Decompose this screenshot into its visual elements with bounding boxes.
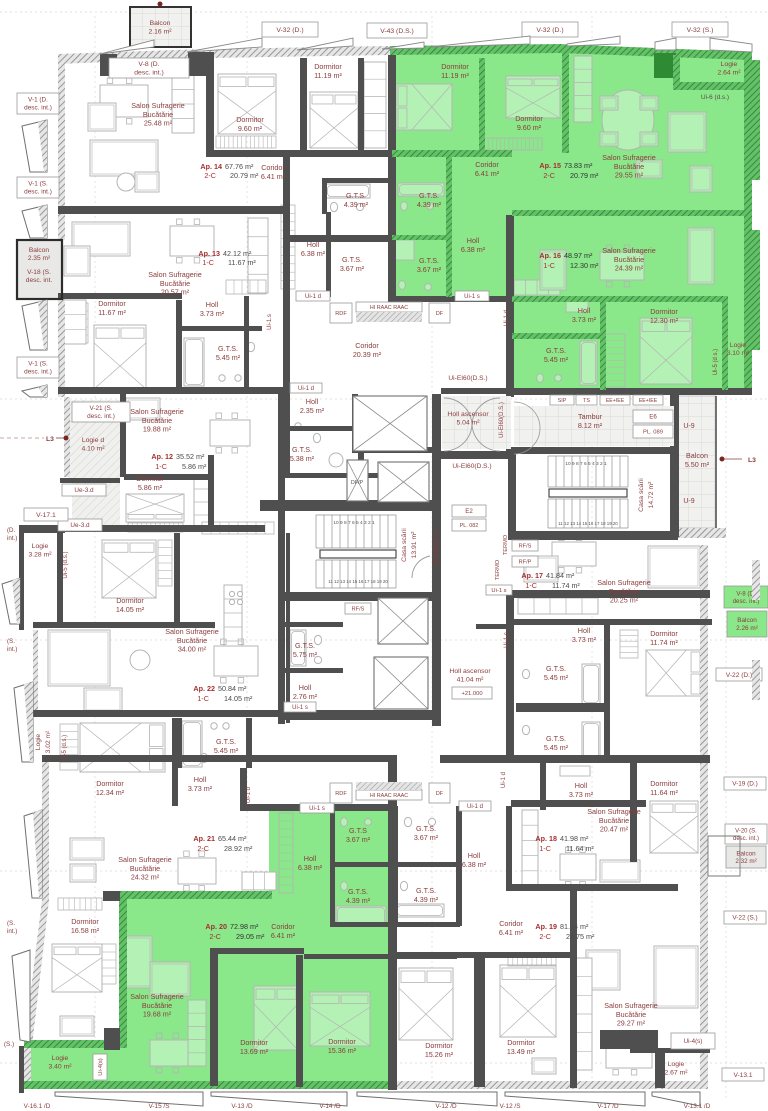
svg-text:Dormitor: Dormitor [328,1037,356,1046]
svg-text:20.25 m²: 20.25 m² [610,596,639,605]
svg-text:G.T.S: G.T.S [349,826,367,835]
svg-text:6.41 m²: 6.41 m² [475,169,500,178]
svg-text:11.19 m²: 11.19 m² [441,71,469,80]
svg-text:5.75 m²: 5.75 m² [293,650,318,659]
svg-text:Ap. 16: Ap. 16 [539,251,561,260]
svg-text:desc. int.): desc. int.) [24,369,52,376]
svg-text:14.05 m²: 14.05 m² [116,605,145,614]
svg-text:Ui-1 s: Ui-1 s [292,705,308,711]
svg-text:Holl ascensor: Holl ascensor [447,411,489,418]
svg-text:20.39 m²: 20.39 m² [353,350,382,359]
svg-text:RF/P: RF/P [519,559,532,565]
svg-text:4.39 m²: 4.39 m² [344,200,369,209]
svg-text:Coridor: Coridor [271,922,295,931]
svg-text:Holl: Holl [578,626,591,635]
svg-text:2.76 m²: 2.76 m² [293,692,318,701]
svg-text:2-C: 2-C [539,932,551,941]
svg-text:2.67 m²: 2.67 m² [664,1069,688,1076]
svg-text:Ap. 12: Ap. 12 [151,452,173,461]
svg-text:1-C: 1-C [197,694,209,703]
svg-text:3.67 m²: 3.67 m² [417,265,442,274]
svg-text:Salon Sufragerie: Salon Sufragerie [118,855,172,864]
svg-text:Bucătărie: Bucătărie [160,279,190,288]
svg-text:Ui-EI60(D S.): Ui-EI60(D S.) [433,530,440,567]
svg-text:12.34 m²: 12.34 m² [96,788,125,797]
svg-text:TERMO: TERMO [495,559,501,580]
svg-text:Holl: Holl [575,781,588,790]
svg-text:3.67 m²: 3.67 m² [346,835,371,844]
svg-text:25.48 m²: 25.48 m² [144,119,173,128]
svg-text:48.97 m²: 48.97 m² [564,251,593,260]
svg-text:Holl: Holl [206,300,219,309]
svg-text:24.32 m²: 24.32 m² [131,873,160,882]
svg-text:Dormitor: Dormitor [650,629,678,638]
svg-text:41.04 m²: 41.04 m² [457,676,485,683]
svg-text:3.28 m²: 3.28 m² [28,551,52,558]
svg-text:EE+IEE: EE+IEE [639,398,658,404]
svg-text:41.98 m²: 41.98 m² [560,834,589,843]
svg-text:Ap. 22: Ap. 22 [193,684,215,693]
svg-text:1-C: 1-C [539,844,551,853]
svg-text:Ui-EI60(D.S.): Ui-EI60(D.S.) [452,463,491,470]
svg-text:HI RAAC RAAC: HI RAAC RAAC [370,793,408,799]
svg-text:13.69 m²: 13.69 m² [240,1047,269,1056]
svg-text:5.45 m²: 5.45 m² [216,353,241,362]
svg-text:RF/S: RF/S [519,543,532,549]
svg-text:U-9: U-9 [683,498,694,505]
svg-text:TERMO: TERMO [503,534,509,555]
svg-text:desc. int.): desc. int.) [24,105,52,112]
svg-text:PL. 089: PL. 089 [643,430,663,436]
svg-text:V-20 (S.: V-20 (S. [735,828,757,834]
svg-text:RDF: RDF [335,311,347,317]
svg-text:15.26 m²: 15.26 m² [425,1050,454,1059]
svg-text:2.35 m²: 2.35 m² [300,406,325,415]
svg-text:Casa scării: Casa scării [401,528,408,562]
svg-text:2.32 m²: 2.32 m² [735,858,756,865]
svg-text:L3: L3 [748,457,756,464]
svg-text:11.64 m²: 11.64 m² [566,844,594,853]
svg-text:G.T.S.: G.T.S. [546,664,566,673]
svg-text:12.30 m²: 12.30 m² [650,316,679,325]
svg-text:Bucătărie: Bucătărie [616,1010,646,1019]
svg-text:PL. 082: PL. 082 [460,523,479,529]
svg-text:67.76 m²: 67.76 m² [225,162,254,171]
svg-text:Ui-1 d: Ui-1 d [246,787,252,803]
svg-text:15.36 m²: 15.36 m² [328,1046,357,1055]
svg-text:11.67 m²: 11.67 m² [98,308,126,317]
svg-text:Ap. 15: Ap. 15 [539,161,561,170]
svg-text:Holl: Holl [194,775,207,784]
svg-text:int.): int.) [7,535,17,542]
svg-text:3.67 m²: 3.67 m² [414,833,439,842]
svg-text:11.74 m²: 11.74 m² [650,638,678,647]
svg-text:4.10 m²: 4.10 m² [81,445,105,452]
svg-text:DF: DF [436,791,444,797]
svg-text:4.39 m²: 4.39 m² [414,895,439,904]
svg-text:Dormitor: Dormitor [507,1038,535,1047]
svg-text:Bucătărie: Bucătărie [177,636,207,645]
svg-text:(S.): (S.) [4,1041,14,1048]
svg-text:EE+IEE: EE+IEE [606,398,625,404]
svg-text:4.39 m²: 4.39 m² [417,200,442,209]
svg-text:V-15 /S: V-15 /S [149,1103,170,1110]
svg-text:desc. int.): desc. int.) [87,413,115,420]
svg-text:V-1 (S.: V-1 (S. [28,181,48,188]
svg-text:6.41 m²: 6.41 m² [271,931,296,940]
svg-text:G.T.S.: G.T.S. [218,344,238,353]
svg-text:G.T.S.: G.T.S. [546,734,566,743]
svg-text:20.79 m²: 20.79 m² [230,171,259,180]
svg-text:Ui-1 s: Ui-1 s [491,588,506,594]
svg-text:int.): int.) [7,928,17,935]
svg-text:Ui-6 (d.s.): Ui-6 (d.s.) [701,94,729,101]
svg-text:19.88 m²: 19.88 m² [143,425,172,434]
svg-text:Bucătărie: Bucătărie [142,1001,172,1010]
svg-text:Bucătărie: Bucătărie [614,255,644,264]
svg-text:Salon Sufragerie: Salon Sufragerie [130,992,184,1001]
svg-text:V-32 (D.): V-32 (D.) [536,27,563,34]
svg-text:Dormitor: Dormitor [515,114,543,123]
svg-text:Ap. 13: Ap. 13 [198,249,220,258]
svg-text:6.38 m²: 6.38 m² [462,860,487,869]
svg-text:Ap. 21: Ap. 21 [193,834,215,843]
svg-text:Holl: Holl [468,851,481,860]
svg-text:Holl: Holl [578,306,591,315]
svg-text:Salon Sufragerie: Salon Sufragerie [148,270,202,279]
svg-text:11.67 m²: 11.67 m² [228,258,256,267]
svg-text:Salon Sufragerie: Salon Sufragerie [604,1001,658,1010]
svg-text:Balcon: Balcon [29,247,49,254]
svg-text:5.45 m²: 5.45 m² [544,355,569,364]
svg-text:10 9 8 7 6 5 4 3 2 1: 10 9 8 7 6 5 4 3 2 1 [565,461,607,467]
svg-text:V-1 (D.: V-1 (D. [28,97,48,104]
svg-text:1-C: 1-C [155,462,167,471]
svg-text:Dormitor: Dormitor [98,299,126,308]
svg-text:Bucătărie: Bucătărie [143,110,173,119]
svg-text:Dormitor: Dormitor [650,307,678,316]
svg-text:Coridor: Coridor [475,160,499,169]
svg-text:G.T.S.: G.T.S. [419,256,439,265]
svg-text:Dormitor: Dormitor [314,62,342,71]
svg-text:Ui-5 (d.s.): Ui-5 (d.s.) [62,735,68,761]
svg-text:V-43 (D.S.): V-43 (D.S.) [380,28,414,35]
svg-text:Ap. 18: Ap. 18 [535,834,557,843]
svg-text:3.02 m²: 3.02 m² [45,730,52,753]
svg-text:Ui-EI60(D.S.): Ui-EI60(D.S.) [448,375,487,382]
svg-text:1-C: 1-C [525,581,537,590]
svg-text:Ui-4(s): Ui-4(s) [98,1058,104,1075]
svg-text:Coridor: Coridor [261,163,285,172]
svg-text:73.83 m²: 73.83 m² [564,161,593,170]
svg-text:2-C: 2-C [543,171,555,180]
svg-text:11.19 m²: 11.19 m² [314,71,342,80]
svg-text:V-21 (S.: V-21 (S. [89,405,112,412]
svg-text:14.05 m²: 14.05 m² [224,694,253,703]
svg-text:3.73 m²: 3.73 m² [572,635,597,644]
svg-text:G.T.S.: G.T.S. [342,255,362,264]
svg-text:29.27 m²: 29.27 m² [617,1019,646,1028]
svg-text:E6: E6 [649,414,657,421]
svg-text:V-32 (D.): V-32 (D.) [276,27,303,34]
svg-text:41.84 m²: 41.84 m² [546,571,575,580]
svg-text:V-13.1 /D: V-13.1 /D [684,1103,711,1110]
svg-text:V-14 /D: V-14 /D [319,1103,341,1110]
svg-text:Ap. 14: Ap. 14 [200,162,222,171]
svg-text:20.79 m²: 20.79 m² [570,171,599,180]
svg-text:5.45 m²: 5.45 m² [214,746,239,755]
svg-text:G.T.S.: G.T.S. [419,191,439,200]
svg-text:Dormitor: Dormitor [71,917,99,926]
svg-text:+21.000: +21.000 [461,691,482,697]
svg-text:Ui-1.s: Ui-1.s [267,314,273,330]
svg-text:16.58 m²: 16.58 m² [71,926,100,935]
svg-text:34.00 m²: 34.00 m² [178,645,207,654]
svg-text:V-12 /S: V-12 /S [500,1103,521,1110]
svg-text:V-12 /D: V-12 /D [435,1103,457,1110]
svg-text:V-18 (S.: V-18 (S. [27,269,51,276]
svg-text:24.39 m²: 24.39 m² [615,264,644,273]
svg-text:Dormitor: Dormitor [96,779,124,788]
svg-text:29.55 m²: 29.55 m² [615,171,644,180]
svg-text:Salon Sufragerie: Salon Sufragerie [131,101,185,110]
svg-text:Bucătărie: Bucătărie [614,162,644,171]
svg-text:Holl: Holl [307,240,320,249]
svg-text:Ui-EI60(D.S.): Ui-EI60(D.S.) [499,402,505,438]
svg-text:DF/P: DF/P [351,480,364,486]
svg-text:9.60 m²: 9.60 m² [238,124,263,133]
svg-text:Logie: Logie [32,543,49,550]
svg-text:42.12 m²: 42.12 m² [223,249,252,258]
svg-text:desc. int.): desc. int.) [733,836,759,842]
svg-text:Ui-1 d: Ui-1 d [504,310,510,326]
svg-text:2.26 m²: 2.26 m² [736,625,758,632]
svg-text:Salon Sufragerie: Salon Sufragerie [165,627,219,636]
svg-text:13.49 m²: 13.49 m² [507,1047,536,1056]
svg-text:29.05 m²: 29.05 m² [236,932,265,941]
svg-text:Salon Sufragerie: Salon Sufragerie [602,153,656,162]
svg-text:2-C: 2-C [204,171,216,180]
svg-text:6.41 m²: 6.41 m² [499,928,524,937]
svg-text:Dormitor: Dormitor [441,62,469,71]
svg-text:Logie: Logie [721,61,738,68]
svg-text:RF/S: RF/S [352,606,365,612]
svg-text:G.T.S.: G.T.S. [416,824,436,833]
svg-text:Ui-5 (d s.): Ui-5 (d s.) [713,349,719,375]
svg-text:20.47 m²: 20.47 m² [600,825,629,834]
svg-text:Holl: Holl [306,397,319,406]
svg-text:Holl ascensor: Holl ascensor [449,668,491,675]
svg-text:Casa scării: Casa scării [638,478,645,512]
svg-text:72.98 m²: 72.98 m² [230,922,259,931]
svg-text:Holl: Holl [467,236,480,245]
svg-text:V-13.1: V-13.1 [733,1072,752,1079]
svg-text:Dormitor: Dormitor [425,1041,453,1050]
svg-text:Ui-5 (d.s.): Ui-5 (d.s.) [62,551,69,578]
svg-text:13.91 m²: 13.91 m² [411,531,418,559]
svg-text:Ap. 17: Ap. 17 [521,571,543,580]
svg-text:Coridor: Coridor [499,919,523,928]
svg-text:10 9 8 7 6 5 4 3 2 1: 10 9 8 7 6 5 4 3 2 1 [333,520,375,526]
svg-text:G.T.S.: G.T.S. [348,887,368,896]
svg-text:HI RAAC RAAC: HI RAAC RAAC [370,305,408,311]
svg-text:(S.: (S. [7,920,15,927]
svg-text:Dormitor: Dormitor [116,596,144,605]
svg-text:Ap. 20: Ap. 20 [205,922,227,931]
svg-text:5.86 m²: 5.86 m² [138,483,163,492]
svg-text:Coridor: Coridor [355,341,379,350]
svg-text:Bucătărie: Bucătărie [599,816,629,825]
svg-text:V-22 (D.): V-22 (D.) [726,672,752,679]
svg-text:3.73 m²: 3.73 m² [200,309,225,318]
svg-text:1-C: 1-C [543,261,555,270]
svg-text:11 12 13 14 15 16 17 18 19 20: 11 12 13 14 15 16 17 18 19 20 [558,521,618,526]
svg-text:(D.: (D. [7,527,16,534]
svg-text:Dormitor: Dormitor [240,1038,268,1047]
svg-text:8.12 m²: 8.12 m² [578,421,603,430]
svg-text:4.39 m²: 4.39 m² [346,896,371,905]
svg-text:Salon Sufragerie: Salon Sufragerie [587,807,641,816]
svg-text:V-17.1: V-17.1 [36,512,56,519]
svg-text:V-1 (S.: V-1 (S. [28,361,48,368]
svg-text:Ui-1 s: Ui-1 s [309,806,325,812]
svg-text:Balcon: Balcon [736,850,756,857]
svg-text:81.54 m²: 81.54 m² [560,922,589,931]
svg-text:Logie: Logie [668,1061,685,1068]
svg-text:Holl: Holl [304,854,317,863]
svg-text:Logie: Logie [52,1055,69,1062]
svg-text:5.04 m²: 5.04 m² [456,419,480,426]
svg-text:Logie d: Logie d [82,437,105,444]
svg-text:E2: E2 [465,508,473,515]
svg-text:Balcon: Balcon [686,451,708,460]
svg-text:3.73 m²: 3.73 m² [188,784,213,793]
svg-text:11.64 m²: 11.64 m² [650,788,678,797]
svg-text:Salon Sufragerie: Salon Sufragerie [602,246,656,255]
svg-text:Bucătărie: Bucătărie [609,587,639,596]
svg-text:2.64 m²: 2.64 m² [717,69,741,76]
svg-text:V-13 /D: V-13 /D [231,1103,253,1110]
svg-text:Ui-1 d: Ui-1 d [467,804,483,810]
svg-text:11 12 13 14 15 16 17 18 19 20: 11 12 13 14 15 16 17 18 19 20 [328,579,388,584]
svg-text:V-22 (S.): V-22 (S.) [732,915,757,922]
svg-text:Logie: Logie [730,342,746,349]
svg-text:U-9: U-9 [683,423,694,430]
svg-text:9.60 m²: 9.60 m² [517,123,542,132]
svg-text:V-8 (D.: V-8 (D. [138,61,159,68]
svg-text:2-C: 2-C [209,932,221,941]
svg-text:G.T.S.: G.T.S. [295,641,315,650]
svg-text:desc. int.): desc. int.) [24,189,52,196]
svg-text:35.52 m²: 35.52 m² [176,452,205,461]
svg-text:Ap. 19: Ap. 19 [535,922,557,931]
svg-text:Ui-1 s: Ui-1 s [464,294,480,300]
svg-text:G.T.S.: G.T.S. [292,445,312,454]
svg-text:Dormitor: Dormitor [236,115,264,124]
svg-text:Bucătărie: Bucătărie [130,864,160,873]
svg-text:SIP: SIP [558,398,567,404]
svg-text:5.38 m²: 5.38 m² [290,454,315,463]
svg-text:Holl: Holl [299,683,312,692]
svg-text:Dormitor: Dormitor [136,474,164,483]
svg-text:Ui-1 d: Ui-1 d [298,386,314,392]
svg-text:2.35 m²: 2.35 m² [28,255,51,262]
svg-text:Dormitor: Dormitor [650,779,678,788]
svg-text:3.67 m²: 3.67 m² [340,264,365,273]
svg-text:1-C: 1-C [202,258,214,267]
svg-text:G.T.S.: G.T.S. [216,737,236,746]
svg-text:G.T.S.: G.T.S. [416,886,436,895]
svg-text:2-C: 2-C [197,844,209,853]
svg-text:6.38 m²: 6.38 m² [461,245,486,254]
svg-text:2.16 m²: 2.16 m² [148,28,172,35]
svg-text:Tambur: Tambur [578,412,603,421]
svg-text:3.73 m²: 3.73 m² [569,790,594,799]
svg-text:Salon Sufragerie: Salon Sufragerie [130,407,184,416]
svg-text:(S.: (S. [7,638,15,645]
svg-text:Ui-1.s: Ui-1.s [504,632,510,648]
svg-text:G.T.S.: G.T.S. [546,346,566,355]
svg-text:RDF: RDF [335,791,347,797]
svg-text:Salon Sufragerie: Salon Sufragerie [597,578,651,587]
svg-text:3.73 m²: 3.73 m² [572,315,597,324]
svg-text:5.45 m²: 5.45 m² [544,673,569,682]
svg-text:5.45 m²: 5.45 m² [544,743,569,752]
svg-text:Balcon: Balcon [150,20,171,27]
svg-text:Ui-4(s): Ui-4(s) [684,1038,703,1045]
svg-text:6.41 m²: 6.41 m² [261,172,286,181]
svg-text:DF: DF [436,311,444,317]
svg-text:desc. int.): desc. int.) [134,70,163,77]
svg-text:5.50 m²: 5.50 m² [685,460,710,469]
svg-text:V-19 (D.): V-19 (D.) [732,781,758,788]
svg-text:28.75 m²: 28.75 m² [566,932,595,941]
svg-text:3.40 m²: 3.40 m² [48,1063,72,1070]
svg-text:20.57 m²: 20.57 m² [161,288,190,297]
svg-text:desc. int.: desc. int. [26,277,53,284]
svg-text:V-17 /D: V-17 /D [597,1103,619,1110]
svg-text:12.30 m²: 12.30 m² [570,261,599,270]
svg-text:L3: L3 [46,436,54,443]
svg-text:5.86 m²: 5.86 m² [182,462,207,471]
svg-text:14.72 m²: 14.72 m² [648,481,655,509]
svg-text:V-32 (S.): V-32 (S.) [687,27,714,34]
svg-text:11.74 m²: 11.74 m² [552,581,580,590]
svg-text:6.38 m²: 6.38 m² [298,863,323,872]
svg-text:Ui-1 d: Ui-1 d [305,294,321,300]
svg-text:Ue-3.d: Ue-3.d [70,522,90,529]
svg-text:Logie: Logie [35,734,42,750]
svg-text:19.68 m²: 19.68 m² [143,1010,172,1019]
svg-text:Balcon: Balcon [737,617,757,624]
svg-text:G.T.S.: G.T.S. [346,191,366,200]
svg-text:50.84 m²: 50.84 m² [218,684,247,693]
svg-text:6.38 m²: 6.38 m² [301,249,326,258]
svg-text:3.10 m²: 3.10 m² [727,350,750,357]
svg-text:Bucătărie: Bucătărie [142,416,172,425]
svg-text:V-16.1 /D: V-16.1 /D [24,1103,51,1110]
svg-text:TS: TS [583,398,590,404]
svg-text:Ue-3.d: Ue-3.d [74,487,94,494]
svg-text:int.): int.) [7,646,17,653]
svg-text:28.92 m²: 28.92 m² [224,844,253,853]
svg-text:65.44 m²: 65.44 m² [218,834,247,843]
svg-text:Ui-1 d: Ui-1 d [501,772,507,788]
